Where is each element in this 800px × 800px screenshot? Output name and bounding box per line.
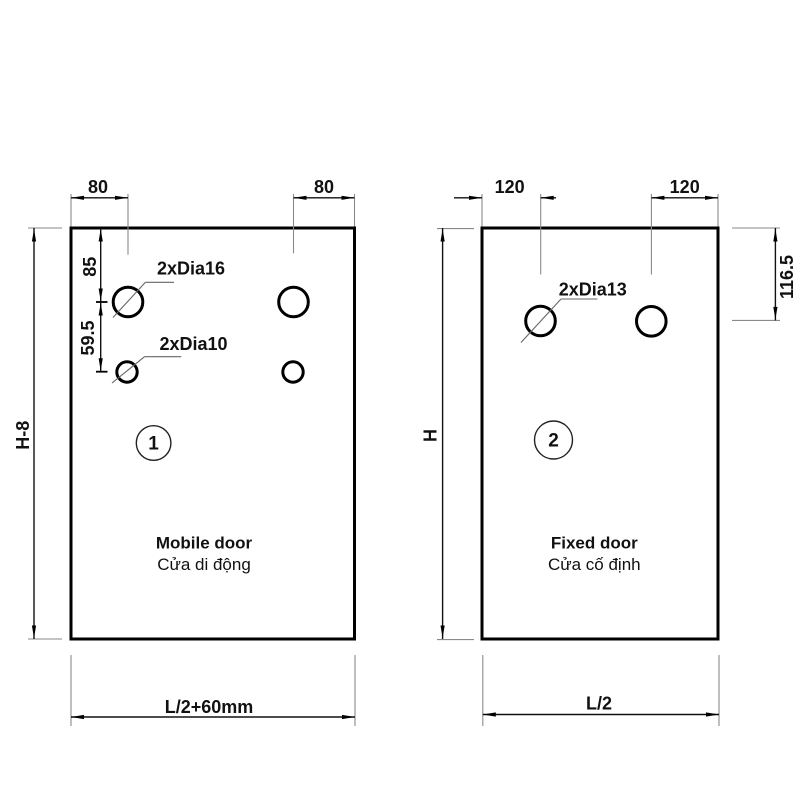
svg-text:Cửa cố định: Cửa cố định	[548, 555, 641, 574]
svg-text:59.5: 59.5	[78, 320, 98, 355]
svg-text:120: 120	[495, 177, 525, 197]
svg-text:H-8: H-8	[13, 421, 33, 450]
svg-text:Cửa di động: Cửa di động	[157, 555, 251, 574]
svg-text:L/2+60mm: L/2+60mm	[165, 697, 254, 717]
svg-text:Fixed door: Fixed door	[551, 534, 638, 553]
svg-text:L/2: L/2	[586, 694, 612, 714]
svg-text:1: 1	[148, 434, 159, 455]
svg-text:2: 2	[548, 431, 559, 452]
svg-text:2xDia10: 2xDia10	[160, 334, 228, 354]
svg-text:H: H	[421, 429, 441, 442]
svg-text:80: 80	[314, 177, 334, 197]
svg-text:2xDia16: 2xDia16	[157, 259, 225, 279]
svg-text:116.5: 116.5	[777, 255, 797, 299]
svg-text:Mobile door: Mobile door	[156, 534, 253, 553]
svg-text:85: 85	[80, 257, 100, 277]
svg-text:120: 120	[670, 177, 700, 197]
svg-text:80: 80	[88, 177, 108, 197]
svg-text:2xDia13: 2xDia13	[559, 280, 627, 300]
